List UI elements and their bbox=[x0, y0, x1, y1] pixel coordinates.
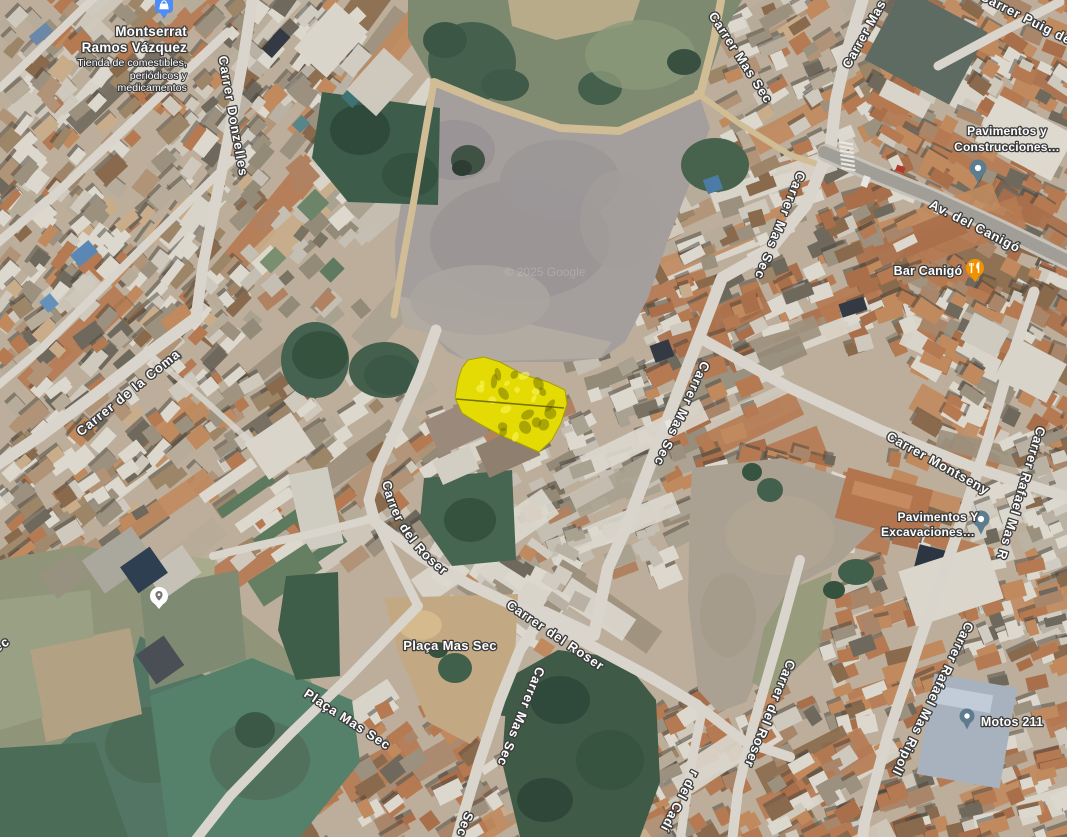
svg-text:periódicos y: periódicos y bbox=[130, 70, 188, 82]
svg-text:Pavimentos y: Pavimentos y bbox=[967, 124, 1047, 138]
svg-text:Pavimentos Y: Pavimentos Y bbox=[898, 510, 979, 524]
svg-text:Plaça Mas Sec: Plaça Mas Sec bbox=[403, 638, 497, 653]
svg-text:Ramos Vázquez: Ramos Vázquez bbox=[82, 40, 187, 55]
svg-text:Excavaciones…: Excavaciones… bbox=[881, 525, 975, 539]
svg-text:© 2025 Google: © 2025 Google bbox=[505, 265, 586, 279]
svg-text:Tienda de comestibles,: Tienda de comestibles, bbox=[77, 57, 187, 69]
svg-text:Montserrat: Montserrat bbox=[115, 24, 187, 39]
svg-text:Construcciones…: Construcciones… bbox=[954, 140, 1060, 154]
svg-text:medicamentos: medicamentos bbox=[118, 82, 187, 94]
svg-text:Motos 211: Motos 211 bbox=[981, 715, 1043, 729]
svg-text:Bar Canigó: Bar Canigó bbox=[894, 264, 963, 278]
